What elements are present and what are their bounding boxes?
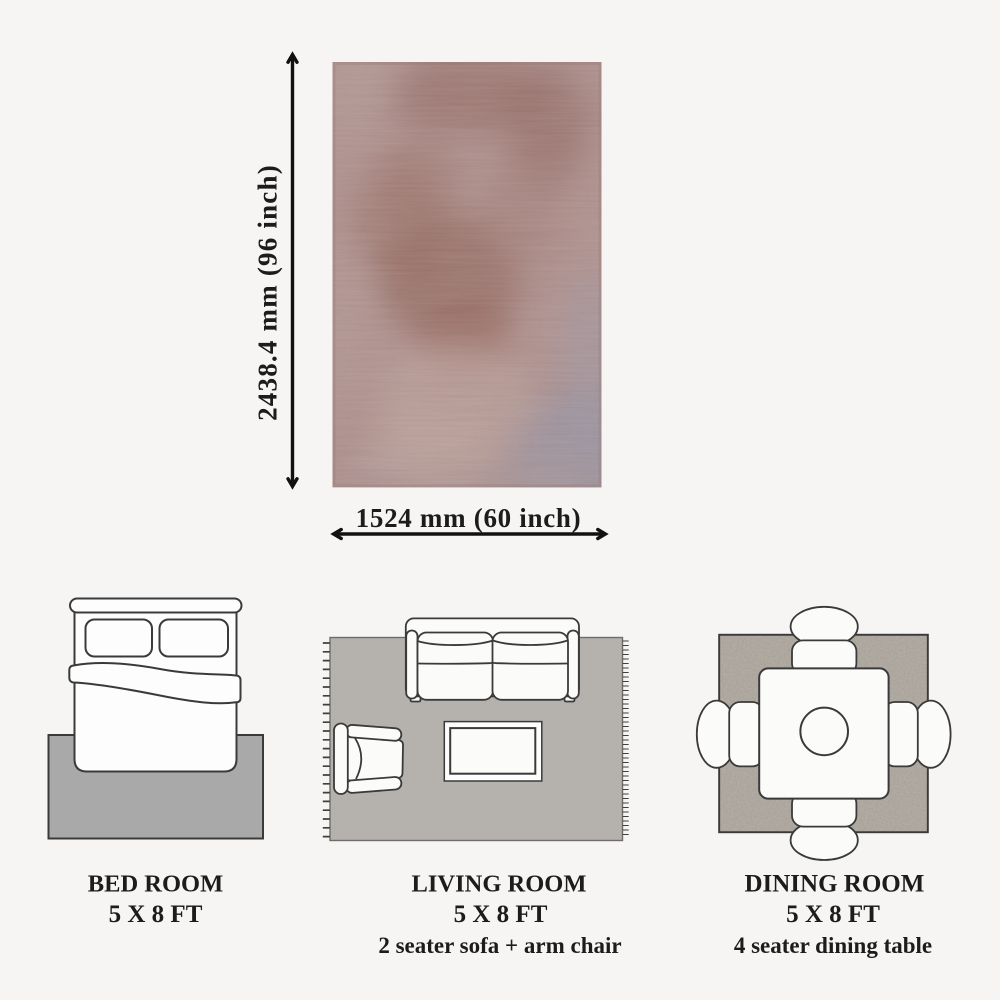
svg-text:4 seater dining table: 4 seater dining table: [734, 933, 932, 958]
svg-text:5 X 8 FT: 5 X 8 FT: [786, 901, 880, 928]
svg-text:DINING ROOM: DINING ROOM: [744, 871, 924, 898]
svg-text:2 seater sofa + arm chair: 2 seater sofa + arm chair: [378, 933, 621, 958]
svg-text:5 X 8 FT: 5 X 8 FT: [109, 901, 203, 928]
svg-text:2438.4 mm (96 inch): 2438.4 mm (96 inch): [253, 164, 283, 421]
svg-text:1524 mm (60 inch): 1524 mm (60 inch): [356, 503, 582, 533]
svg-text:5 X 8 FT: 5 X 8 FT: [454, 901, 548, 928]
svg-text:LIVING ROOM: LIVING ROOM: [412, 871, 587, 898]
svg-text:BED ROOM: BED ROOM: [88, 871, 223, 898]
